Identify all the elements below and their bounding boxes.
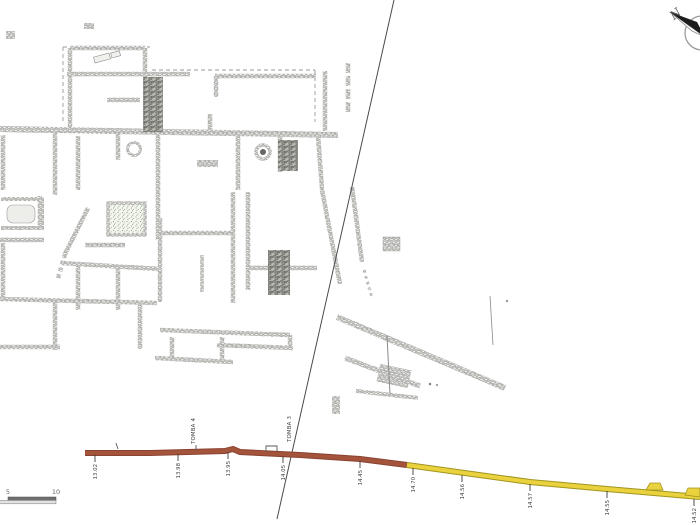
wall-segment [318, 135, 322, 190]
thin-wall-line [490, 296, 493, 345]
basin-inner [7, 205, 35, 223]
thin-wall-line [387, 336, 390, 394]
section-profile: TOMBA 4 TOMBA 3 13.02 13.98 13.95 14.05 … [85, 416, 700, 524]
tomb-labels: TOMBA 4 TOMBA 3 [191, 416, 293, 445]
wall-segment [0, 129, 338, 135]
elevation-label: 14.45 [358, 470, 364, 485]
elevation-label: 14.70 [411, 476, 417, 492]
section-line-east [407, 465, 700, 497]
wall-segment [322, 190, 340, 284]
stone-scatter [84, 23, 94, 29]
column-base [128, 143, 141, 156]
rubble-fill [278, 140, 298, 171]
excavation-plan [0, 23, 508, 414]
elevation-label: 14.57 [528, 493, 534, 508]
stone-scatter [376, 364, 411, 388]
stone-block [111, 51, 121, 58]
elevation-label: 14.52 [692, 508, 698, 523]
tomb-label: TOMBA 4 [191, 418, 197, 445]
elevation-label: 14.56 [460, 483, 466, 499]
wall-segment [160, 330, 290, 335]
plan-walls [0, 48, 505, 398]
stone-dot [429, 383, 432, 386]
wall-fragment [352, 187, 362, 262]
scale-bar-label: 10 [52, 488, 60, 496]
stone-dot [506, 300, 508, 302]
stone-scatter [332, 396, 340, 414]
wall-fragment [337, 317, 505, 388]
scale-bar-dark-segment [8, 497, 56, 500]
wall-fragment [364, 270, 372, 298]
scale-bar-label: 5 [6, 488, 10, 496]
stone-scatter [6, 31, 15, 39]
well-center [260, 149, 266, 155]
scale-bar-light-segment [0, 500, 56, 503]
elevation-label: 14.55 [605, 500, 611, 515]
section-step [685, 488, 700, 497]
figure-canvas: TOMBA 4 TOMBA 3 13.02 13.98 13.95 14.05 … [0, 0, 700, 525]
rubble-fill-areas [143, 77, 298, 295]
stone-scatter [197, 160, 218, 167]
wall-segment [217, 345, 293, 348]
section-step [646, 483, 663, 490]
small-mark [116, 443, 118, 449]
elevation-label: 14.05 [281, 465, 287, 480]
stone-block [93, 53, 110, 63]
site-plan-figure: TOMBA 4 TOMBA 3 13.02 13.98 13.95 14.05 … [0, 0, 700, 525]
tomb-label: TOMBA 3 [287, 416, 293, 443]
stone-scatter [383, 237, 400, 251]
rubble-fill [268, 250, 290, 295]
wall-segment [65, 208, 88, 254]
section-line-west [85, 449, 407, 465]
rubble-fill [143, 77, 163, 132]
mosaic-floor [108, 203, 145, 235]
stone-dot [436, 384, 438, 386]
wall-fragment [356, 391, 418, 398]
wall-segment [58, 254, 65, 278]
elevation-label: 13.95 [226, 461, 232, 476]
elevation-label: 13.02 [93, 464, 99, 479]
scale-bar: 5 10 [0, 488, 60, 504]
north-arrow-icon: N [666, 5, 700, 50]
elevation-label: 13.98 [176, 462, 182, 478]
